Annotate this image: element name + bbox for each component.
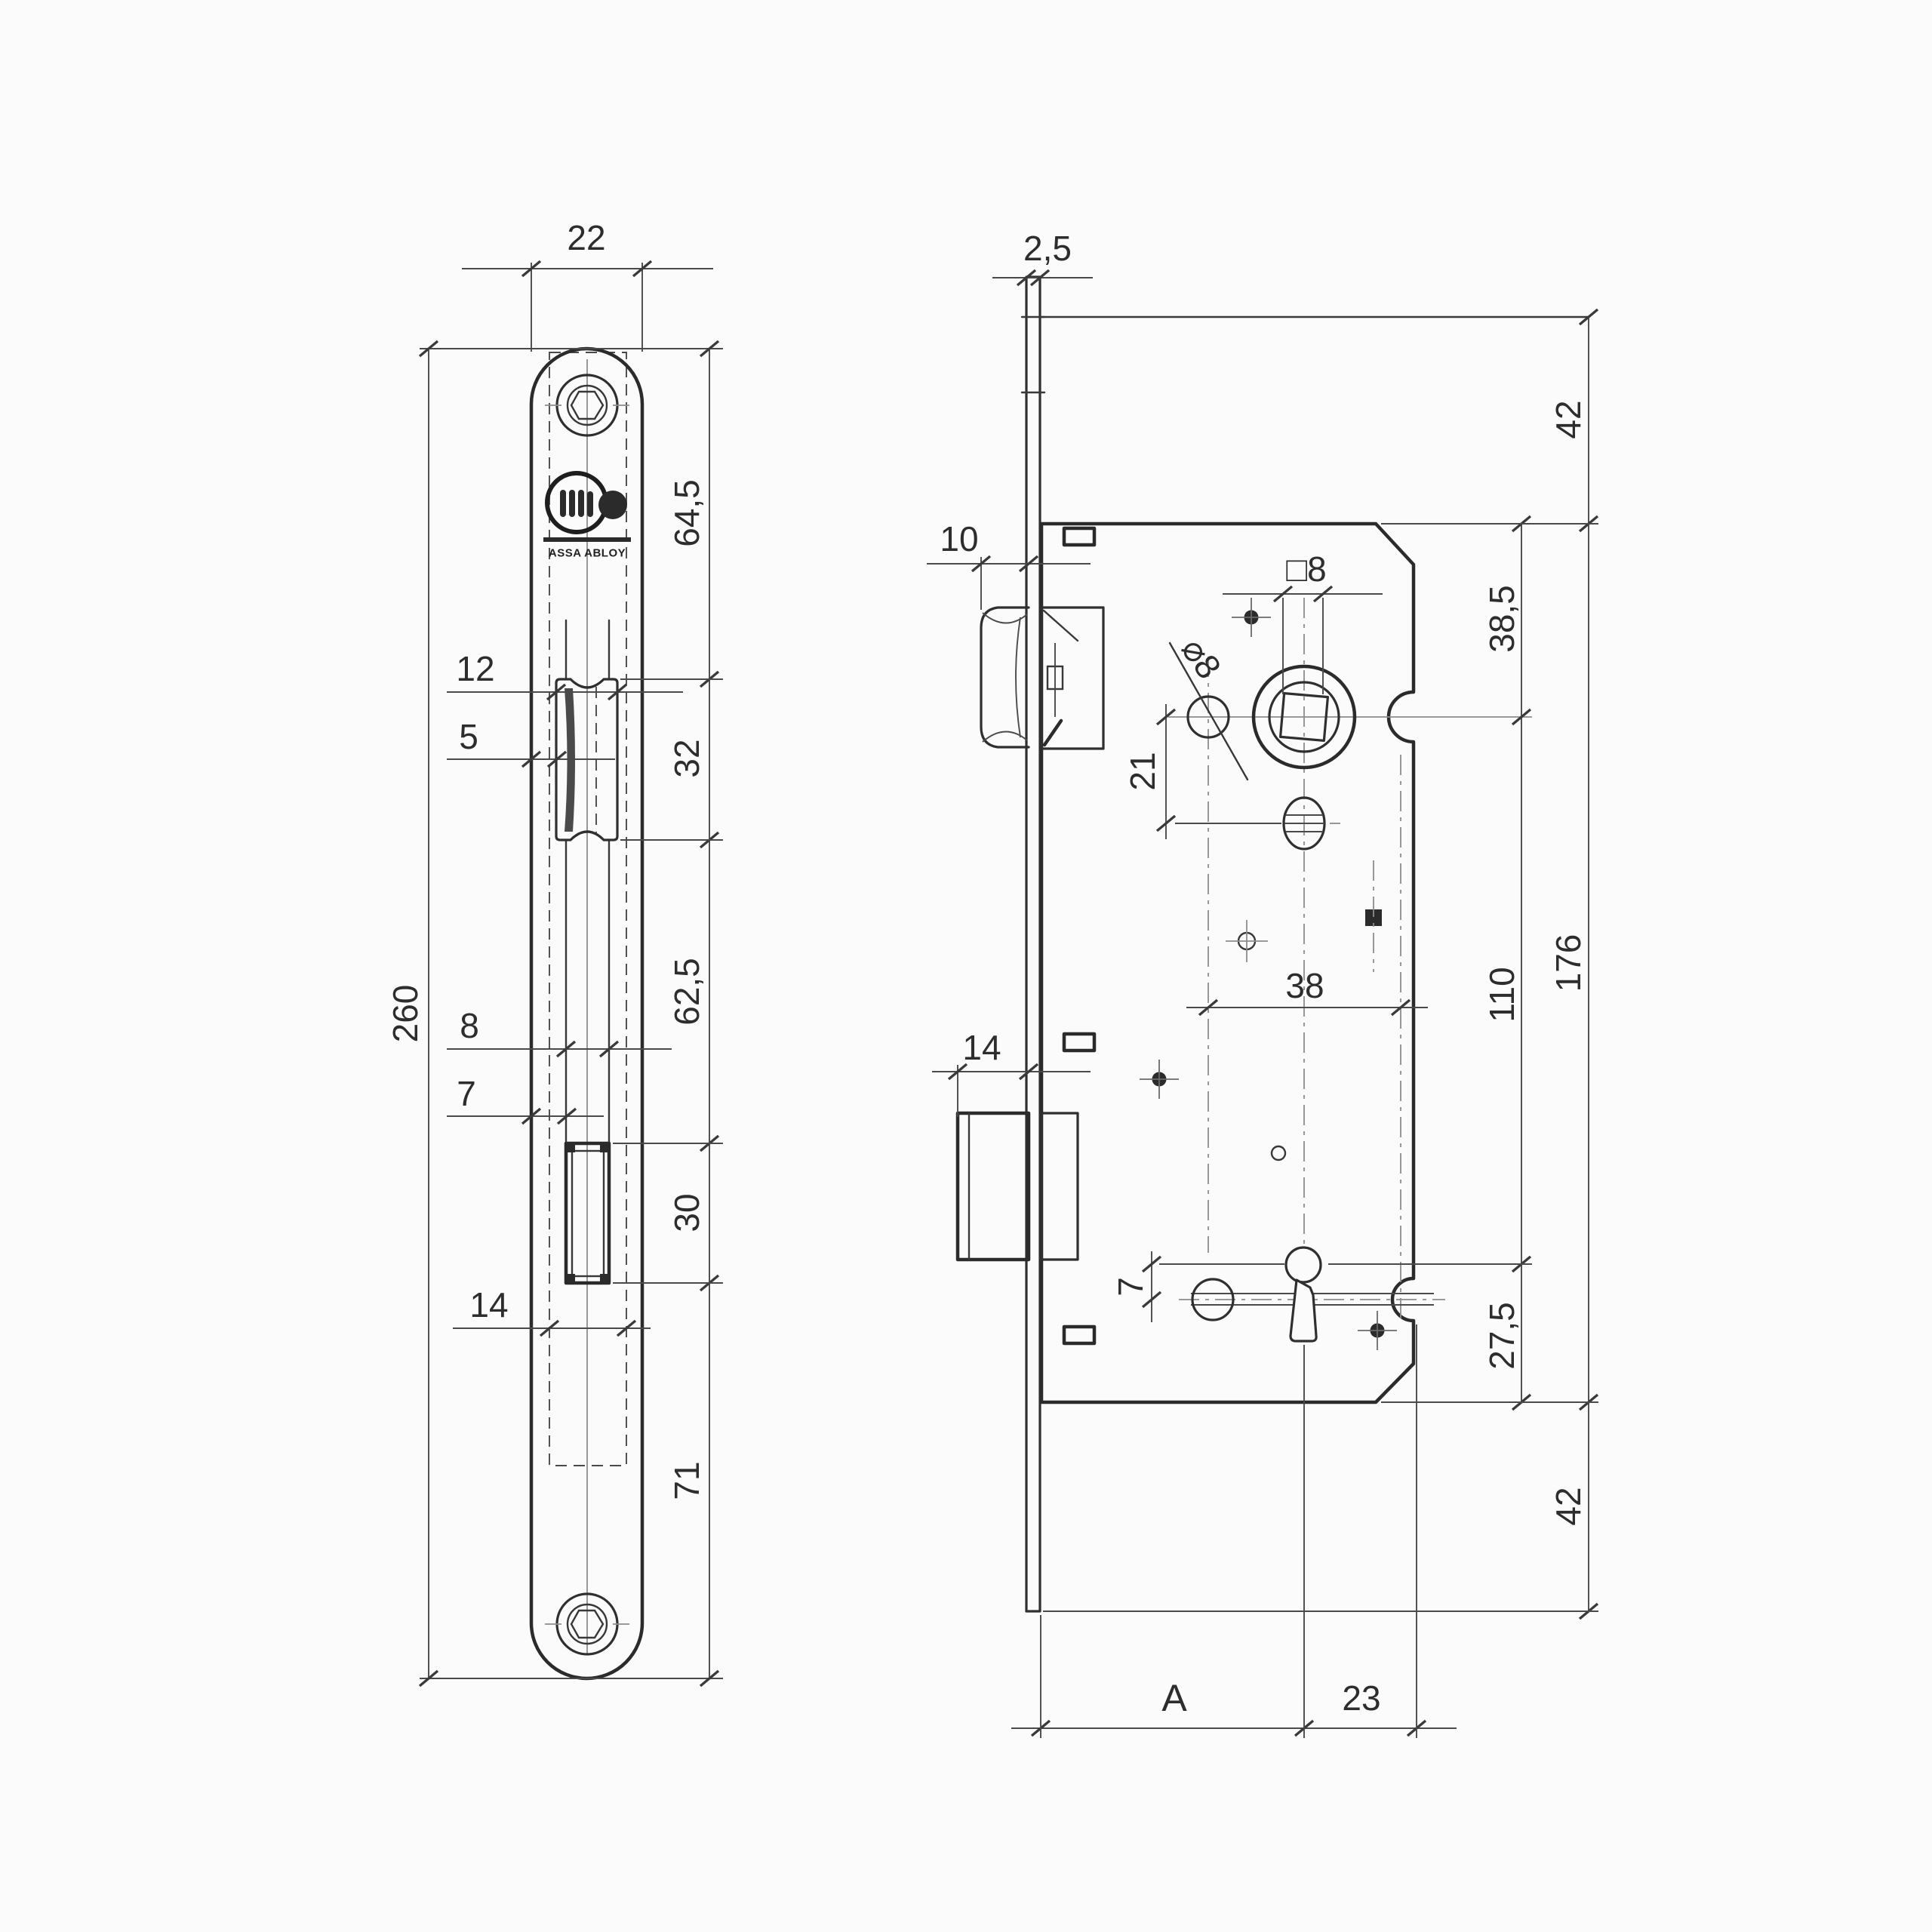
dim-front-slot-height: 30	[669, 1193, 704, 1232]
dim-side-top-to-hub: 38,5	[1484, 585, 1519, 653]
dim-side-key-to-edge: 23	[1342, 1681, 1380, 1715]
dim-side-spindle-square: □8	[1286, 552, 1326, 586]
dim-front-slot-width: 8	[460, 1008, 479, 1043]
dim-side-plate-thickness: 2,5	[1023, 231, 1072, 266]
pin-mark	[1358, 1311, 1397, 1350]
dim-side-backset: A	[1161, 1679, 1186, 1717]
dim-front-latch-width: 12	[456, 651, 494, 686]
small-hole	[1272, 1146, 1285, 1160]
dim-side-key-to-bottom: 27,5	[1484, 1302, 1519, 1370]
side-keyhole	[1286, 1247, 1321, 1341]
side-deadbolt	[958, 1113, 1078, 1260]
screw-cross-mark	[1226, 920, 1268, 962]
dim-front-slot-to-bottom: 71	[669, 1461, 704, 1500]
pin-mark	[1232, 598, 1271, 637]
brand-logo-text: ASSA ABLOY	[549, 547, 626, 560]
dim-side-hole-spacing: 38	[1285, 968, 1324, 1003]
dim-side-latch-protrusion: 10	[940, 521, 978, 556]
dim-front-latch-to-slot: 62,5	[669, 958, 704, 1026]
dim-side-top-margin: 42	[1551, 400, 1586, 438]
dim-front-plate-height: 260	[388, 985, 423, 1043]
side-rect-hole-mid	[1064, 1034, 1094, 1051]
dim-side-hub-to-key: 110	[1484, 967, 1519, 1022]
dim-side-bottom-margin: 42	[1551, 1487, 1586, 1525]
dim-side-case-height: 176	[1551, 934, 1586, 992]
side-latch-bolt	[981, 608, 1103, 749]
dim-front-latch-height: 32	[669, 739, 704, 777]
technical-drawing-canvas: 22 260 64,5 32 62,5 30 71 12 5 8 7 14 AS…	[0, 0, 1932, 1932]
pin-mark	[1140, 1060, 1179, 1099]
dim-front-plate-width: 22	[567, 220, 605, 255]
side-lock-body	[1041, 524, 1414, 1402]
dim-side-bolt-protrusion: 14	[962, 1030, 1001, 1065]
front-hidden-case	[549, 352, 626, 1466]
side-rect-hole-top	[1064, 528, 1094, 545]
dim-side-hub-to-oval: 21	[1125, 752, 1160, 790]
dim-front-slot-offset: 7	[457, 1076, 476, 1111]
dim-side-key-offset: 7	[1113, 1277, 1148, 1297]
side-rect-hole-bottom	[1064, 1327, 1094, 1343]
dim-front-latch-bevel: 5	[459, 719, 478, 754]
dim-front-case-width: 14	[469, 1287, 508, 1322]
lock-drawing	[0, 0, 1932, 1932]
dim-front-top-to-latch: 64,5	[669, 479, 704, 547]
